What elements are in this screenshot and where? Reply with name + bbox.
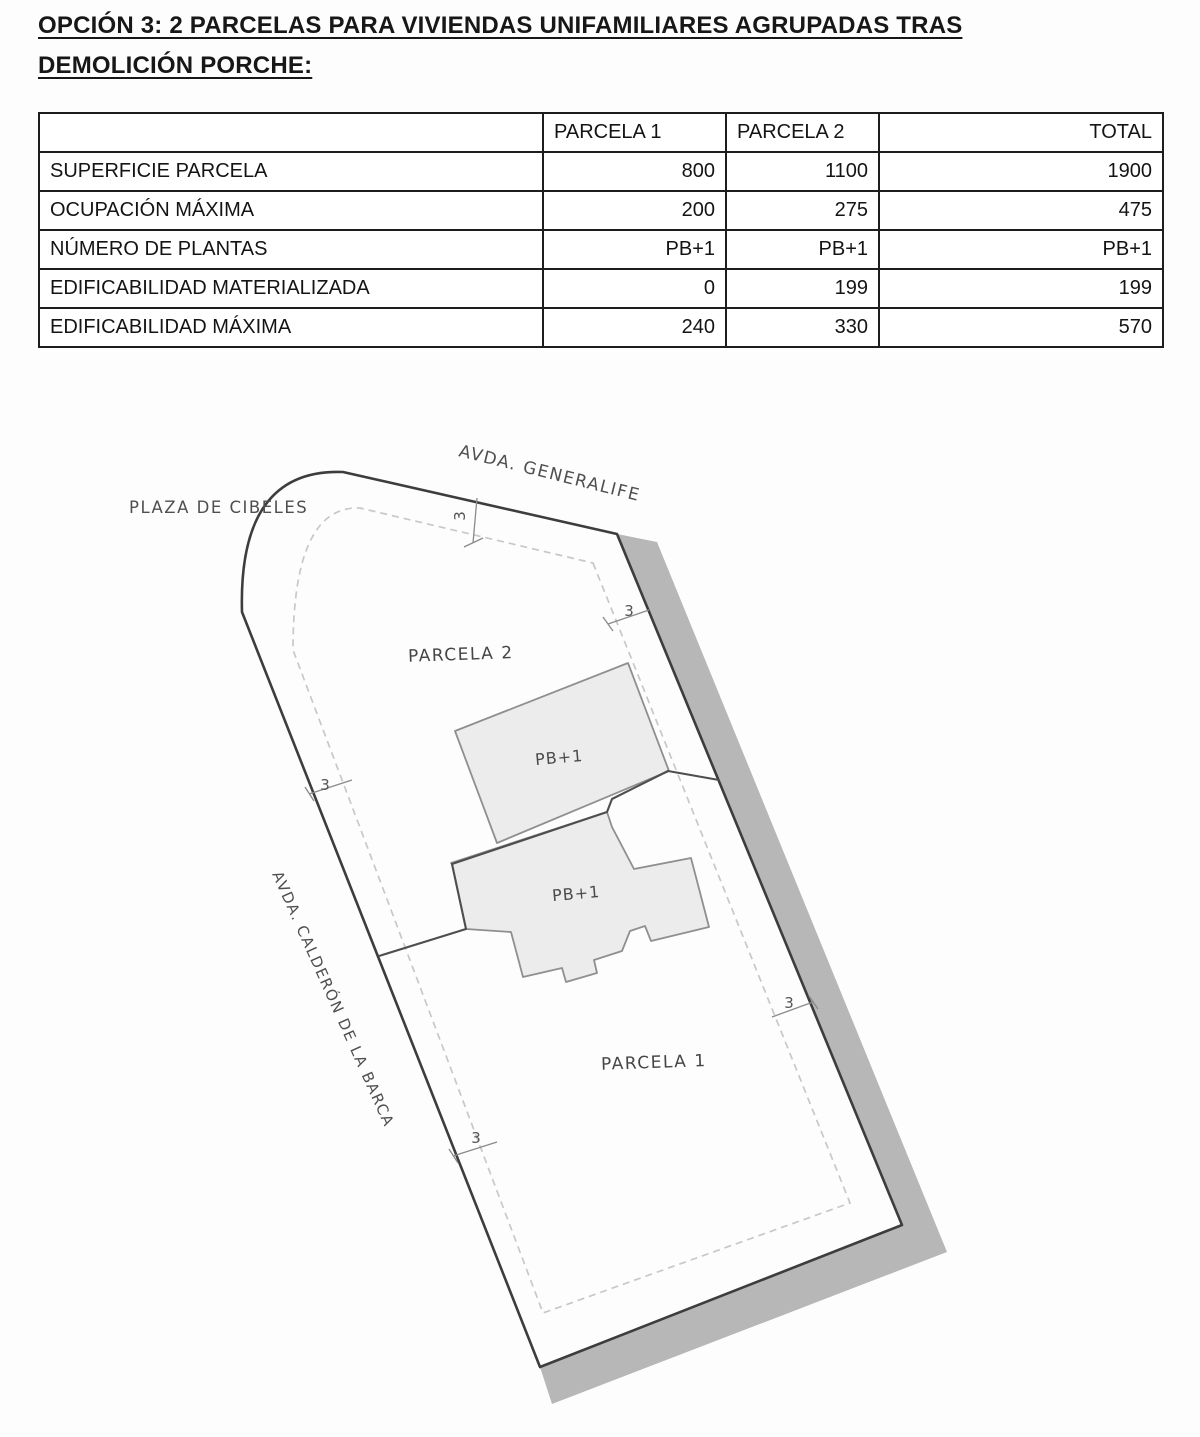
dimension-value: 3 [471, 1129, 481, 1147]
header-blank [39, 113, 543, 152]
header-total: TOTAL [879, 113, 1163, 152]
cell-parcela1: 200 [543, 191, 726, 230]
dimension-value: 3 [624, 602, 634, 620]
site-plan: 3 3 3 3 3 AVDA. GENERALIFE PLAZA DE CIBE… [0, 400, 1200, 1437]
street-label-cibeles: PLAZA DE CIBELES [129, 498, 308, 517]
cell-parcela2: 1100 [726, 152, 879, 191]
street-label-generalife: AVDA. GENERALIFE [457, 441, 643, 505]
cell-parcela1: 0 [543, 269, 726, 308]
dimension-value: 3 [451, 511, 469, 521]
cell-label: EDIFICABILIDAD MATERIALIZADA [39, 269, 543, 308]
cell-total: 199 [879, 269, 1163, 308]
table-row: NÚMERO DE PLANTAS PB+1 PB+1 PB+1 [39, 230, 1163, 269]
dimension-3-top: 3 [451, 498, 483, 547]
dimension-tick-serif [603, 617, 613, 631]
table-header-row: PARCELA 1 PARCELA 2 TOTAL [39, 113, 1163, 152]
cell-label: OCUPACIÓN MÁXIMA [39, 191, 543, 230]
cell-parcela1: PB+1 [543, 230, 726, 269]
header-parcela1: PARCELA 1 [543, 113, 726, 152]
parcel-label-1: PARCELA 1 [601, 1051, 707, 1075]
cell-parcela2: PB+1 [726, 230, 879, 269]
cell-parcela2: 275 [726, 191, 879, 230]
header-parcela2: PARCELA 2 [726, 113, 879, 152]
cell-label: EDIFICABILIDAD MÁXIMA [39, 308, 543, 347]
page-title: OPCIÓN 3: 2 PARCELAS PARA VIVIENDAS UNIF… [38, 6, 1168, 86]
document-page: { "title": { "line1": "OPCIÓN 3: 2 PARCE… [0, 0, 1200, 1437]
cell-parcela2: 199 [726, 269, 879, 308]
dimension-3-right-top: 3 [603, 602, 649, 631]
table-row: EDIFICABILIDAD MATERIALIZADA 0 199 199 [39, 269, 1163, 308]
table-row: OCUPACIÓN MÁXIMA 200 275 475 [39, 191, 1163, 230]
cell-total: 475 [879, 191, 1163, 230]
page-title-line1: OPCIÓN 3: 2 PARCELAS PARA VIVIENDAS UNIF… [38, 6, 1168, 46]
parcel-data-table: PARCELA 1 PARCELA 2 TOTAL SUPERFICIE PAR… [38, 112, 1164, 348]
cell-total: PB+1 [879, 230, 1163, 269]
table-row: EDIFICABILIDAD MÁXIMA 240 330 570 [39, 308, 1163, 347]
page-title-line2: DEMOLICIÓN PORCHE: [38, 46, 1168, 86]
cell-parcela2: 330 [726, 308, 879, 347]
street-label-calderon: AVDA. CALDERÓN DE LA BARCA [268, 868, 399, 1130]
cell-label: NÚMERO DE PLANTAS [39, 230, 543, 269]
street-band [540, 534, 947, 1404]
cell-total: 570 [879, 308, 1163, 347]
cell-total: 1900 [879, 152, 1163, 191]
dimension-value: 3 [784, 994, 794, 1012]
parcel-label-2: PARCELA 2 [408, 643, 514, 667]
table-row: SUPERFICIE PARCELA 800 1100 1900 [39, 152, 1163, 191]
cell-parcela1: 800 [543, 152, 726, 191]
dimension-value: 3 [320, 776, 330, 794]
cell-parcela1: 240 [543, 308, 726, 347]
cell-label: SUPERFICIE PARCELA [39, 152, 543, 191]
